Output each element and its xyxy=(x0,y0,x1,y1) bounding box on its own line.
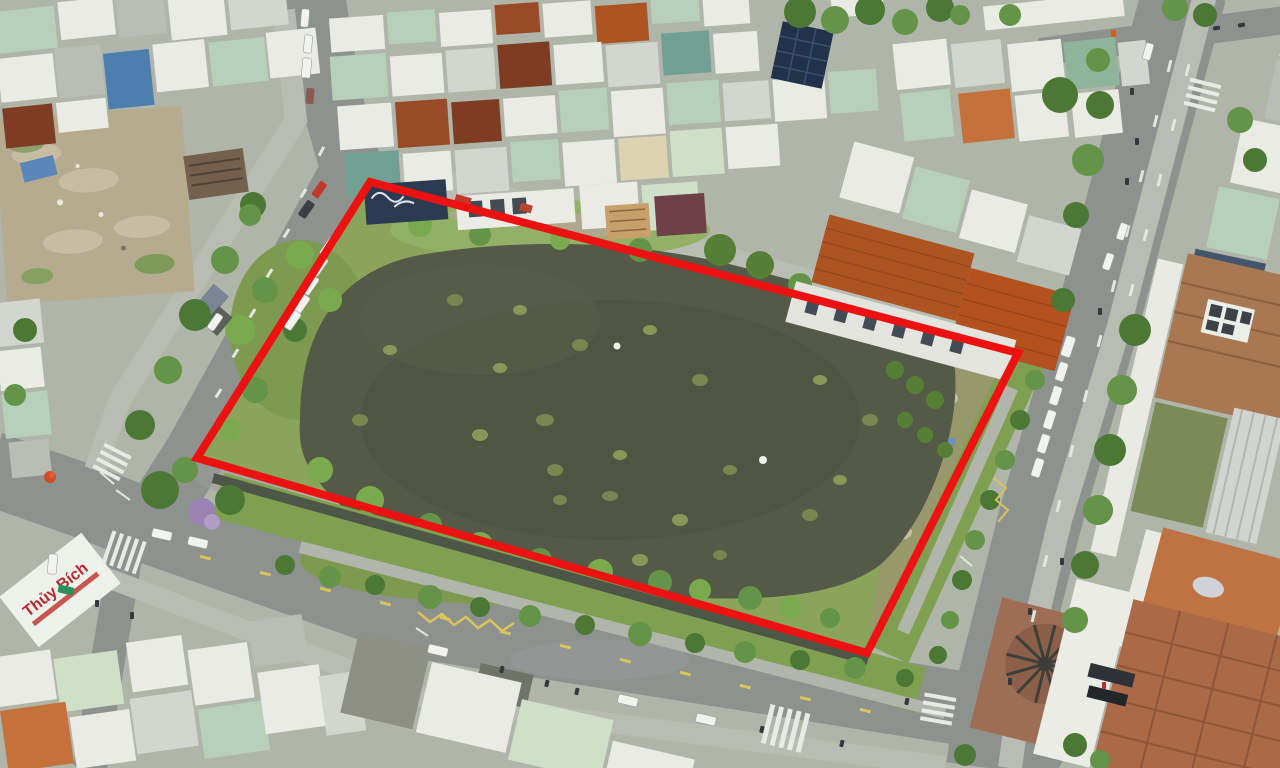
truck xyxy=(305,88,314,105)
white-debris xyxy=(759,456,767,464)
white-van xyxy=(47,554,58,575)
old-tiled-house xyxy=(183,148,249,200)
purple-blossom-tree xyxy=(204,514,220,530)
maroon-roof xyxy=(654,193,707,236)
aerial-photo-canvas: Thủy Bích xyxy=(0,0,1280,768)
orange-motorbike xyxy=(1111,30,1116,37)
aerial-photo: Thủy Bích xyxy=(0,0,1280,768)
red-motorbike xyxy=(1102,682,1106,689)
pond-sheen xyxy=(360,265,600,375)
market-umbrella xyxy=(49,472,55,478)
white-debris xyxy=(614,343,621,350)
